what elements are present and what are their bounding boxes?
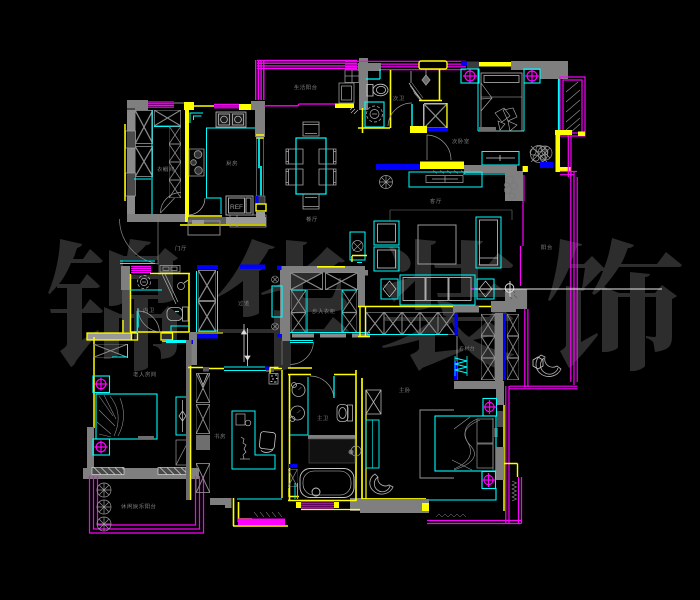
- svg-text:REF: REF: [230, 204, 243, 211]
